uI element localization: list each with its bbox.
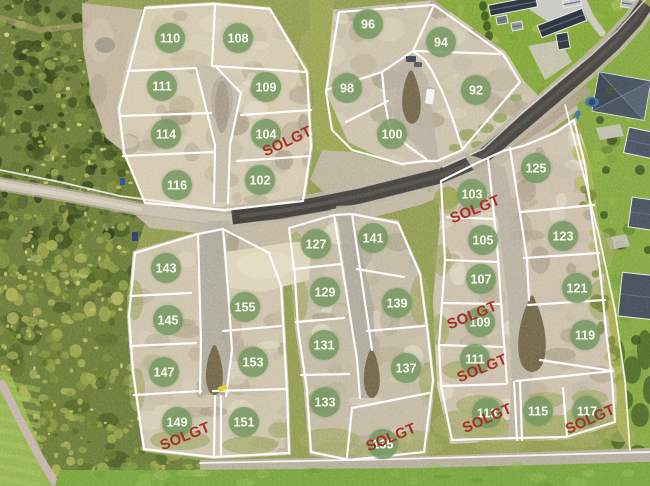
svg-text:114: 114 bbox=[156, 128, 176, 142]
svg-text:115: 115 bbox=[528, 405, 548, 419]
svg-text:145: 145 bbox=[157, 314, 178, 328]
svg-text:109: 109 bbox=[255, 81, 276, 95]
svg-text:151: 151 bbox=[233, 416, 254, 430]
svg-text:94: 94 bbox=[434, 36, 448, 50]
svg-text:105: 105 bbox=[472, 234, 493, 248]
svg-text:92: 92 bbox=[469, 84, 483, 98]
svg-text:149: 149 bbox=[166, 416, 187, 430]
svg-text:107: 107 bbox=[470, 273, 491, 287]
svg-text:102: 102 bbox=[249, 174, 270, 188]
svg-text:111: 111 bbox=[152, 80, 172, 94]
svg-text:125: 125 bbox=[525, 162, 546, 176]
svg-text:98: 98 bbox=[340, 82, 354, 96]
svg-text:116: 116 bbox=[167, 179, 187, 193]
svg-text:131: 131 bbox=[313, 339, 334, 353]
svg-text:143: 143 bbox=[155, 262, 176, 276]
svg-text:133: 133 bbox=[314, 396, 335, 410]
svg-text:127: 127 bbox=[305, 238, 326, 252]
svg-text:110: 110 bbox=[160, 32, 180, 46]
svg-text:153: 153 bbox=[242, 356, 263, 370]
svg-text:96: 96 bbox=[361, 18, 375, 32]
svg-text:100: 100 bbox=[381, 128, 402, 142]
svg-text:121: 121 bbox=[566, 282, 587, 296]
svg-text:123: 123 bbox=[552, 230, 573, 244]
svg-text:155: 155 bbox=[234, 301, 255, 315]
svg-text:141: 141 bbox=[362, 232, 383, 246]
svg-text:139: 139 bbox=[386, 297, 407, 311]
svg-text:147: 147 bbox=[153, 366, 174, 380]
svg-text:129: 129 bbox=[314, 286, 335, 300]
svg-text:137: 137 bbox=[395, 362, 416, 376]
svg-text:119: 119 bbox=[575, 329, 595, 343]
svg-text:108: 108 bbox=[227, 32, 248, 46]
